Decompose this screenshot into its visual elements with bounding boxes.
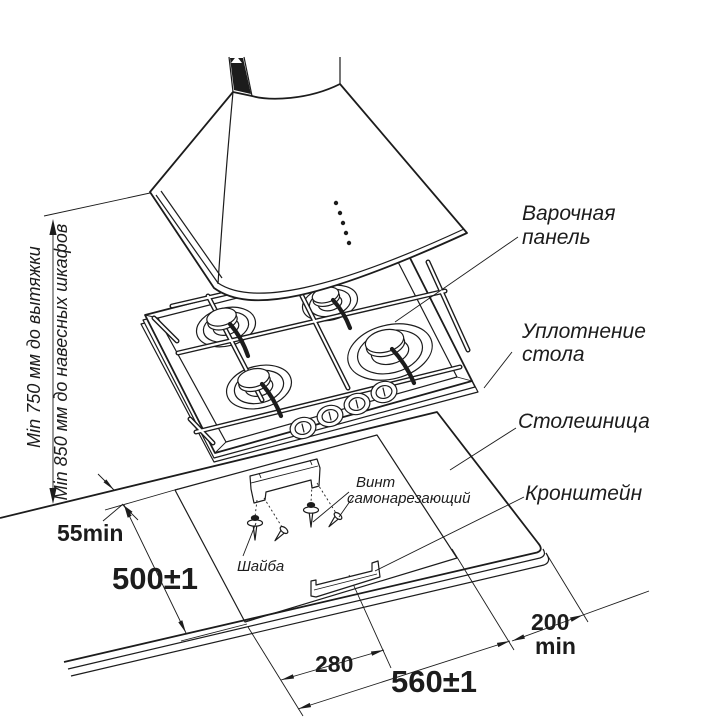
dimension-55min [98,474,138,521]
label-screw-line1: Винт [356,474,395,491]
hood-body [150,84,467,300]
cutout-back-extension [105,489,178,510]
washer-leader [243,523,256,556]
dim-text-280: 280 [315,651,353,677]
range-hood [150,56,467,300]
label-hob-line1: Варочная [522,202,615,225]
screw-with-washer-2 [304,502,319,527]
self-tapping-screw-2 [326,511,344,529]
label-seal-line1: Уплотнение [521,320,646,343]
dim-text-hood-clearance: Min 750 мм до вытяжки [24,246,44,448]
dim-text-560: 560±1 [391,664,477,699]
diagram-drawing: Варочная панель Уплотнение стола Столешн… [0,0,701,728]
hood-extension-line [44,193,150,216]
label-screw-line2: самонарезающий [347,490,471,507]
dim-text-min: min [535,633,576,659]
seal-leader [484,352,512,388]
dim-text-cabinet-clearance: Min 850 мм до навесных шкафов [51,224,71,501]
label-bracket: Кронштейн [525,482,643,505]
label-hob-line2: панель [522,226,591,249]
label-washer: Шайба [237,558,284,575]
width-left-extension [248,627,303,716]
countertop-leader [450,428,516,470]
installation-diagram: Варочная панель Уплотнение стола Столешн… [0,0,701,728]
dim-text-55min: 55min [57,520,123,546]
dim-text-500: 500±1 [112,561,198,596]
screw-with-washer-1 [248,515,263,540]
label-countertop: Столешница [518,410,650,433]
self-tapping-screw-1 [272,525,290,543]
dim-text-200: 200 [531,609,569,635]
label-seal-line2: стола [522,343,585,366]
